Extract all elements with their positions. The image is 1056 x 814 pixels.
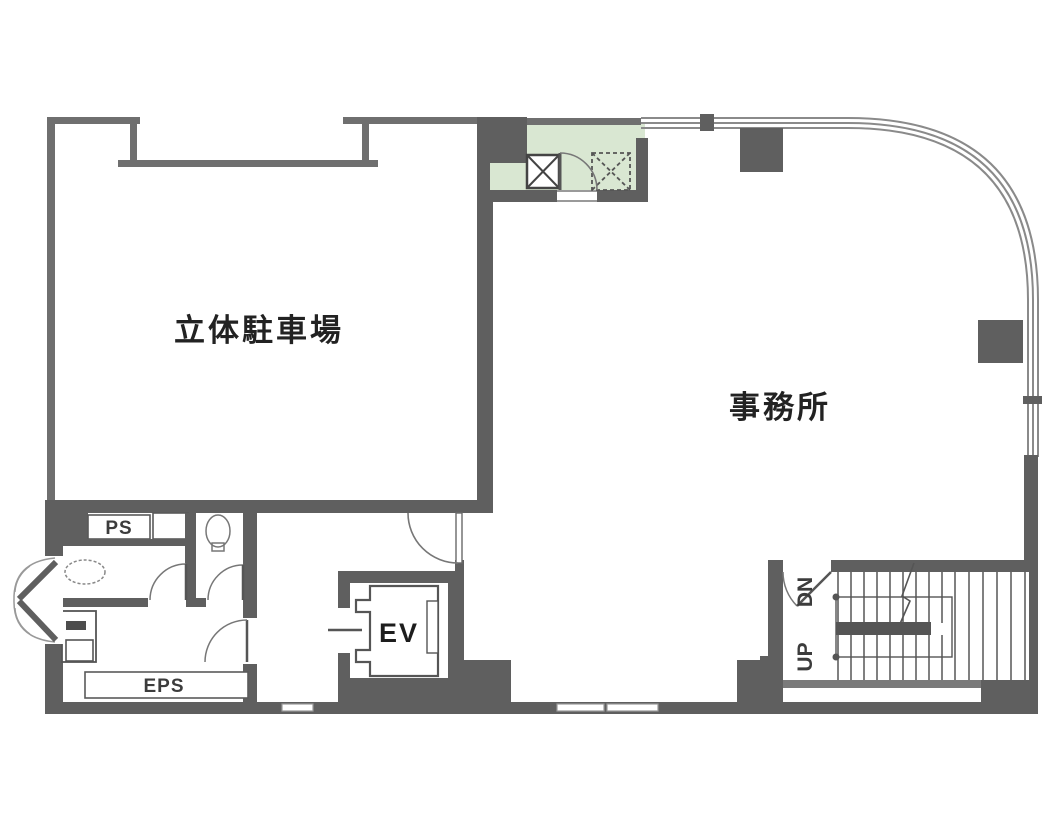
door-swing-arc-icon [408,513,458,563]
toilet-icon [206,515,230,551]
stair-start-dot [833,594,840,601]
wall-mass [55,513,88,543]
parking-notch-bottom [118,160,378,167]
parking-room: 立体駐車場 [45,117,493,513]
parking-top-wall-a [47,117,140,124]
curtain-wall-mullion-top [700,114,714,131]
service-core [477,117,648,202]
floor-plan-canvas: 立体駐車場 [0,0,1056,814]
elevator-label: EV [379,618,419,648]
parking-top-wall-b [369,117,481,124]
stair-start-dot [833,654,840,661]
right-wall-upper [1024,455,1038,570]
bottom-wall-band [45,702,1038,714]
parking-left-wall [47,117,55,507]
eps-doorway [243,618,257,664]
office-room-label: 事務所 [729,390,831,425]
solid-x-shaft-icon [527,155,559,188]
ev-counterweight [427,601,438,653]
stair-handrail [836,622,931,635]
office-column-top [740,128,783,172]
parking-bottom-wall [45,500,482,513]
parking-room-label: 立体駐車場 [174,313,344,348]
wc-doorway [148,598,186,607]
door-swing-arc-icon [150,564,186,600]
elevator-shaft: EV [328,571,460,704]
door-swing-arc-icon [205,620,247,662]
eps-label: EPS [143,676,184,697]
doorway-sill-line [557,200,597,202]
ev-wall-bottom [338,678,460,704]
door-leaf [456,513,462,563]
pipe-shaft-label: PS [105,518,132,539]
doorway-sill-line [557,190,597,192]
washbasin-icon [65,560,105,584]
office-column-right [978,320,1023,363]
curtain-wall [641,118,1038,457]
curtain-wall-mullion-right [1023,396,1042,404]
service-block: PS EPS [45,500,257,714]
eps-equipment [62,611,96,662]
wc-partition-h [62,539,185,546]
stairs-up-label: UP [794,642,817,671]
parking-notch-right [362,117,369,167]
bottom-block-a [455,660,511,704]
bottom-block-c [981,680,1038,714]
service-core-left-block [477,117,527,163]
ev-wall-top [338,571,460,583]
floor-plan-page: 立体駐車場 [0,0,1056,814]
stair-doorway [783,560,831,572]
door-swing-arc-icon [208,565,243,600]
small-shaft-box [153,513,188,539]
parking-notch-left [130,117,137,167]
stairs-down-label: DN [794,577,817,607]
stair-wall-left [768,560,783,660]
service-core-top-wall [513,118,641,125]
wc-doorway [206,598,243,607]
entrance-double-doors [14,556,63,644]
stair-wall-left-block [760,656,783,704]
stair-wall-bottom-thin [783,680,981,688]
